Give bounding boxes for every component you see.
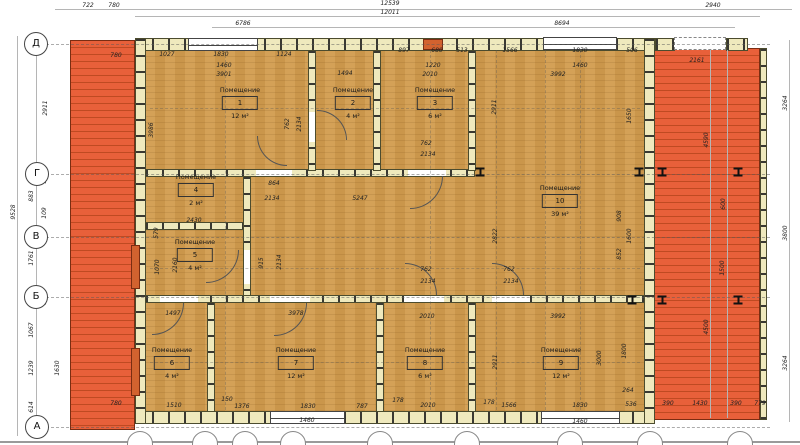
exterior-wall-right (644, 38, 655, 424)
room-label: Помещение (405, 346, 445, 354)
dimension-label: 536 (625, 402, 636, 408)
dimension-label: 2010 (419, 314, 434, 320)
room-area: 6 м² (405, 372, 445, 380)
right-terrace-deck (652, 48, 760, 420)
dimension-label: 178 (483, 400, 494, 406)
axis-bubble-А: А (25, 415, 49, 439)
dimension-label: 2134 (277, 254, 283, 269)
room-6: Помещение64 м² (152, 346, 192, 380)
dimension-label: 762 (420, 267, 431, 273)
dimension-label: 780 (110, 53, 121, 59)
room-7: Помещение712 м² (276, 346, 316, 380)
room-3: Помещение36 м² (415, 86, 455, 120)
axis-line (46, 44, 770, 45)
steel-beam-icon (658, 168, 667, 177)
room-label: Помещение (541, 346, 581, 354)
dimension-label: 2134 (264, 196, 279, 202)
dimension-label: 390 (730, 401, 741, 407)
dimension-label: 1460 (216, 63, 231, 69)
dimension-label: 1067 (29, 322, 35, 337)
dimension-label: 787 (356, 404, 367, 410)
room-area: 4 м² (175, 264, 215, 272)
door-opening (244, 250, 250, 284)
dimension-label: 762 (503, 267, 514, 273)
room-area: 12 м² (276, 372, 316, 380)
dimension-line (55, 9, 792, 10)
dimension-label: 1124 (276, 52, 291, 58)
dimension-label: 1500 (720, 260, 726, 275)
room-area: 39 м² (540, 210, 580, 218)
room-area: 12 м² (220, 112, 260, 120)
dimension-label: 1376 (234, 404, 249, 410)
grid-bubble (637, 431, 663, 445)
interior-wall (207, 302, 215, 412)
interior-wall (373, 50, 381, 171)
room-area: 12 м² (541, 372, 581, 380)
room-number: 8 (407, 356, 443, 370)
dimension-label: 2010 (420, 403, 435, 409)
axis-line (46, 427, 770, 428)
dimension-label: 390 (662, 401, 673, 407)
room-4: Помещение42 м² (176, 173, 216, 207)
room-number: 10 (542, 194, 578, 208)
room-number: 7 (278, 356, 314, 370)
right-deck-edge-board (760, 48, 767, 420)
dimension-label: 1800 (622, 343, 628, 358)
dimension-label: 2160 (173, 257, 179, 272)
dimension-label: 852 (617, 248, 623, 259)
dimension-label: 2911 (493, 354, 499, 369)
dimension-label: 5247 (352, 196, 367, 202)
dimension-label: 2161 (689, 58, 704, 64)
deck-door-panel (131, 348, 140, 396)
room-label: Помещение (152, 346, 192, 354)
dimension-line (710, 50, 711, 418)
grid-bubble (192, 431, 218, 445)
dimension-label: 2134 (503, 279, 518, 285)
dimension-label: 908 (617, 210, 623, 221)
door-opening (309, 112, 315, 142)
dimension-line (789, 40, 790, 422)
dimension-label: 3986 (149, 122, 155, 137)
axis-bubble-В: В (24, 225, 48, 249)
dimension-label: 3264 (783, 355, 789, 370)
room-label: Помещение (220, 86, 260, 94)
room-label: Помещение (175, 238, 215, 246)
dimension-label: 6786 (235, 21, 250, 27)
deck-door-panel (131, 245, 140, 289)
dimension-label: 1510 (166, 403, 181, 409)
dimension-label: 3992 (550, 72, 565, 78)
dimension-label: 1460 (299, 418, 314, 424)
room-number: 3 (417, 96, 453, 110)
dimension-label: 264 (622, 388, 633, 394)
dimension-line (135, 16, 760, 17)
dimension-label: 1830 (572, 48, 587, 54)
dimension-label: 12011 (380, 10, 399, 16)
left-terrace-deck (70, 40, 135, 430)
room-label: Помещение (176, 173, 216, 181)
dimension-label: 1566 (501, 403, 516, 409)
room-area: 4 м² (152, 372, 192, 380)
dimension-label: 883 (29, 190, 35, 201)
dimension-label: 2940 (705, 3, 720, 9)
dimension-label: 3901 (216, 72, 231, 78)
dimension-label: 2134 (420, 279, 435, 285)
dimension-label: 1830 (572, 403, 587, 409)
dimension-label: 109 (42, 207, 48, 218)
dimension-label: 1566 (502, 48, 517, 54)
dimension-label: 762 (420, 141, 431, 147)
dimension-label: 12539 (380, 1, 399, 7)
dimension-label: 1494 (337, 71, 352, 77)
dimension-label: 2134 (420, 152, 435, 158)
dimension-label: 680 (431, 48, 442, 54)
dimension-label: 9528 (11, 204, 17, 219)
dimension-label: 1650 (627, 108, 633, 123)
dimension-label: 2134 (297, 116, 303, 131)
room-8: Помещение86 м² (405, 346, 445, 380)
dimension-label: 579 (154, 227, 160, 238)
room-number: 6 (154, 356, 190, 370)
dimension-label: 3800 (783, 225, 789, 240)
steel-beam-icon (658, 296, 667, 305)
dimension-label: 3264 (783, 95, 789, 110)
dimension-label: 897 (398, 48, 409, 54)
dimension-label: 4500 (704, 319, 710, 334)
dimension-label: 762 (285, 118, 291, 129)
dimension-label: 3992 (550, 314, 565, 320)
grid-bubble (727, 431, 753, 445)
grid-bubble (232, 431, 258, 445)
room-label: Помещение (415, 86, 455, 94)
dimension-label: 150 (221, 397, 232, 403)
interior-wall (376, 302, 384, 412)
room-label: Помещение (540, 184, 580, 192)
grid-bubble (367, 431, 393, 445)
dimension-label: 2010 (422, 72, 437, 78)
dimension-label: 614 (29, 401, 35, 412)
drawing-frame-line (0, 441, 800, 443)
dimension-label: 779 (754, 401, 765, 407)
steel-beam-icon (635, 168, 644, 177)
steel-beam-icon (628, 296, 637, 305)
dimension-line (727, 50, 728, 418)
grid-bubble (454, 431, 480, 445)
dimension-label: 1830 (300, 404, 315, 410)
dimension-label: 1430 (692, 401, 707, 407)
dimension-label: 513 (456, 48, 467, 54)
dimension-line (212, 27, 735, 28)
dimension-label: 722 (82, 3, 93, 9)
dimension-label: 1761 (29, 250, 35, 265)
dimension-label: 3000 (597, 350, 603, 365)
room-label: Помещение (333, 86, 373, 94)
interior-wall (468, 50, 476, 171)
dimension-line (17, 36, 18, 436)
room-label: Помещение (276, 346, 316, 354)
dimension-label: 2911 (43, 100, 49, 115)
dimension-label: 2430 (186, 218, 201, 224)
room-area: 2 м² (176, 199, 216, 207)
interior-wall (468, 302, 476, 412)
grid-bubble (557, 431, 583, 445)
axis-bubble-Б: Б (24, 285, 48, 309)
axis-bubble-Г: Г (25, 162, 49, 186)
dimension-label: 1460 (572, 63, 587, 69)
dimension-label: 506 (626, 48, 637, 54)
room-2: Помещение24 м² (333, 86, 373, 120)
dimension-label: 1630 (55, 360, 61, 375)
room-9: Помещение912 м² (541, 346, 581, 380)
dimension-label: 2822 (493, 228, 499, 243)
dimension-label: 1220 (425, 63, 440, 69)
room-number: 5 (177, 248, 213, 262)
axis-bubble-Д: Д (24, 32, 48, 56)
dimension-label: 780 (108, 3, 119, 9)
dimension-label: 4590 (704, 132, 710, 147)
floor-plan-canvas: 7227801253912011294067868694780102718301… (0, 0, 800, 445)
room-area: 4 м² (333, 112, 373, 120)
interior-wall (308, 50, 316, 171)
dimension-label: 1070 (155, 259, 161, 274)
room-area: 6 м² (415, 112, 455, 120)
room-10: Помещение1039 м² (540, 184, 580, 218)
door-opening (256, 170, 292, 176)
room-number: 1 (222, 96, 258, 110)
steel-beam-icon (734, 168, 743, 177)
grid-bubble (127, 431, 153, 445)
dimension-label: 1497 (165, 311, 180, 317)
steel-beam-icon (734, 296, 743, 305)
room-number: 9 (543, 356, 579, 370)
dimension-label: 1027 (159, 52, 174, 58)
room-number: 4 (178, 183, 214, 197)
dimension-label: 915 (259, 257, 265, 268)
room-5: Помещение54 м² (175, 238, 215, 272)
grid-bubble (280, 431, 306, 445)
dimension-label: 600 (721, 198, 727, 209)
dimension-label: 3978 (288, 311, 303, 317)
dimension-label: 1600 (627, 228, 633, 243)
room-1: Помещение112 м² (220, 86, 260, 120)
dimension-label: 1830 (213, 52, 228, 58)
dimension-label: 780 (110, 401, 121, 407)
dimension-label: 1239 (29, 360, 35, 375)
room-number: 2 (335, 96, 371, 110)
dimension-label: 864 (268, 181, 279, 187)
steel-beam-icon (476, 168, 485, 177)
dimension-label: 1460 (572, 419, 587, 425)
dimension-label: 178 (392, 398, 403, 404)
dimension-label: 8694 (554, 21, 569, 27)
dimension-label: 2911 (492, 99, 498, 114)
